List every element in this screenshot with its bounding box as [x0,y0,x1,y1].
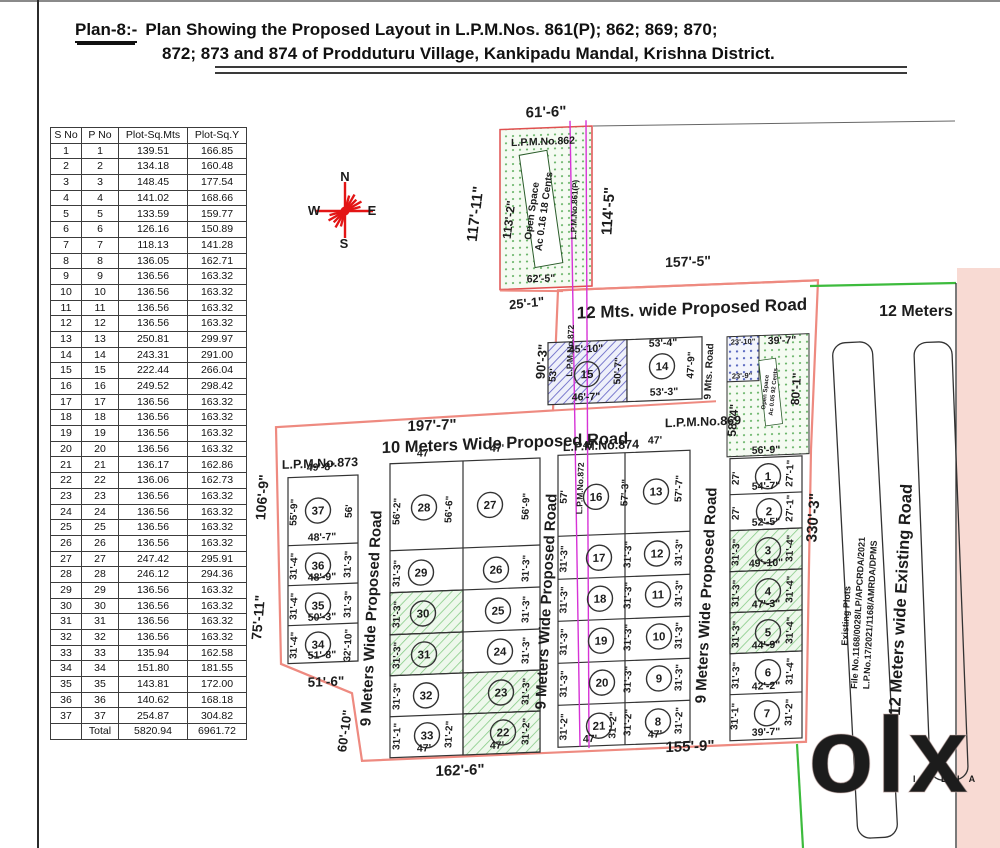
plot-number: 9 [656,673,662,685]
compass-rose: N E S W [308,169,377,251]
compass-south-label: S [340,236,349,251]
dim-label: 31'-3" [730,661,742,689]
road-and-file-labels: 12 Meters330'-3"Existing PlotsFile No.11… [803,303,953,716]
dim-label: 155'-9" [665,737,714,756]
dim-label: 51'-6" [308,674,345,690]
plot-number: 21 [593,720,606,733]
dim-label: L.P.M.No.869 [665,413,741,430]
olx-watermark-india: I N D I A [913,774,979,784]
dim-label: 12 Meters [879,303,953,320]
dim-label: 31'-3" [558,628,570,656]
dim-label: 48'-7" [308,531,337,544]
dim-label: 57'-3" [619,479,631,507]
dim-label: 46'-7" [572,391,601,404]
plot-number: 15 [581,369,594,382]
dim-label: 31'-3" [342,590,354,618]
dim-label: 31'-3" [391,641,403,669]
dim-label: 56'-9" [520,492,532,520]
plot-number: 10 [653,631,666,643]
dim-label: 31'-3" [622,666,634,694]
dim-label: 47' [417,742,431,755]
dim-label: 47' [648,434,662,447]
plot-number: 33 [421,730,434,742]
dim-label: 162'-6" [435,761,484,780]
dim-label: 54'-7" [752,480,781,493]
dim-label: 55'-9" [288,498,300,526]
dim-label: 44'-9" [752,639,781,652]
dim-label: 31'-3" [520,595,532,623]
plot-number: 25 [492,605,505,618]
dim-label: L.P.M.No.872 [564,325,576,377]
green-road-line-top [810,283,956,286]
dim-label: 106'-9" [252,474,272,521]
dim-label: 114'-5" [598,187,618,236]
dim-label: 50'-3" [308,611,337,624]
dim-label: 31'-4" [288,631,300,659]
dim-label: 31'-1" [729,702,741,730]
dim-label: 60'-10" [334,709,355,753]
plot-number: 24 [494,646,507,659]
dim-label: 31'-3" [622,541,634,569]
dim-label: 23'-9" [732,371,753,381]
plot-number: 26 [490,564,503,576]
dim-label: 50'-7" [612,357,624,385]
dim-label: 53' [547,368,559,382]
plan-drawing: 1514373635342829303132332726252423221617… [0,0,1000,848]
plot-number: 29 [415,567,428,579]
dim-label: 31'-4" [288,552,300,580]
dim-label: 31'-3" [520,636,532,664]
dim-label: 31'-2" [443,720,455,748]
dim-label: 47' [583,439,597,452]
dim-label: 39'-7" [768,334,797,347]
dim-label: 31'-2" [783,698,795,726]
dim-label: 31'-3" [622,624,634,652]
dim-label: 31'-4" [784,657,796,685]
dim-label: 27'-1" [784,494,796,522]
plot-number: 22 [497,727,510,739]
dim-label: 31'-3" [622,582,634,610]
dim-label: 47' [583,733,597,746]
dim-label: L.P.M.No.874 [563,437,639,454]
dim-label: L.P.M.No.862 [511,135,575,149]
dim-label: 56'-6" [443,495,455,523]
plot-number: 37 [312,505,325,517]
plot-number: 19 [595,635,608,647]
dim-label: 31'-2" [558,713,570,741]
dim-label: 47'-9" [685,351,697,379]
plot-number: 20 [596,677,609,689]
dim-label: 56' [344,504,356,518]
plot-number: 4 [765,586,772,598]
scanned-layout-plan: Plan-8:-Plan Showing the Proposed Layout… [0,0,1000,848]
dim-label: 47'-3" [752,598,781,611]
dim-label: 62'-5" [527,272,556,285]
dim-label: 48'-9" [308,571,337,584]
dim-label: 56'-2" [391,497,403,525]
dim-label: 47' [490,442,504,455]
dim-label: 31'-3" [391,559,403,587]
dim-label: 56'-9" [752,444,781,457]
dim-label: 61'-6" [526,103,567,122]
north-boundary-line [593,121,955,126]
plot-number: 18 [594,593,607,606]
dim-label: 31'-3" [558,545,570,573]
dim-label: 31'-2" [622,709,634,737]
dim-label: 31'-3" [520,677,532,705]
dim-label: 31'-4" [784,575,796,603]
dim-label: 9 Meters Wide Proposed Road [357,510,385,726]
dim-label: 197'-7" [407,416,456,435]
plot-number: 32 [420,690,433,702]
plot-number: 3 [765,545,771,557]
dim-label: 39'-7" [752,726,781,739]
dim-label: 9 Mts. Road [703,343,717,399]
dim-label: 47' [417,447,431,460]
dim-label: 53'-4" [649,337,678,350]
dim-label: 31'-2" [673,707,685,735]
dim-label: 31'-1" [391,722,403,750]
dim-label: 47' [490,739,504,752]
dim-label: 25'-1" [509,294,545,313]
plot-number: 16 [590,492,603,504]
dim-label: 31'-3" [342,550,354,578]
dim-label: 47' [648,728,662,741]
dim-label: 31'-3" [673,622,685,650]
dim-label: 31'-4" [288,592,300,620]
dim-label: 51'-8" [308,649,337,662]
dim-label: 53'-3" [650,386,679,399]
dim-label: 23'-10" [731,337,756,347]
dim-label: 330'-3" [803,493,823,543]
dim-label: 27' [731,506,743,520]
dim-label: 27'-1" [784,459,796,487]
dim-label: 31'-3" [520,554,532,582]
plot-number: 8 [655,716,662,728]
plot-number: 5 [765,627,772,639]
dim-label: 49'-10" [749,557,783,570]
dim-label: 31'-3" [730,538,742,566]
dim-label: 31'-3" [673,539,685,567]
dim-label: 31'-3" [673,664,685,692]
dim-label: 57' [559,490,571,504]
compass-east-label: E [368,203,377,218]
dim-label: 12 Mts. wide Proposed Road [577,295,807,323]
compass-north-label: N [340,169,349,184]
olx-watermark: olx [808,694,970,815]
plot-number: 11 [652,589,665,601]
plot-number: 28 [418,502,431,515]
dim-label: 31'-3" [391,600,403,628]
dim-label: Existing Plots [839,586,852,646]
dim-label: 49'-8" [307,461,336,474]
dim-label: 75'-11" [248,595,268,641]
dim-label: 52'-5" [752,516,781,529]
dim-label: 31'-3" [558,586,570,614]
dim-label: 31'-3" [558,670,570,698]
dim-label: 80'-1" [788,372,804,405]
plot-number: 23 [495,687,508,699]
dim-label: 117'-11" [464,185,488,242]
dim-label: 57'-7" [673,475,685,503]
dim-label: 31'-2" [520,717,532,745]
dim-label: 157'-5" [665,252,711,270]
dim-label: 12 Meters wide Existing Road [886,483,916,716]
compass-west-label: W [308,203,321,218]
plot-number: 14 [656,361,669,374]
dim-label: 31'-3" [730,620,742,648]
dim-label: 31'-3" [730,579,742,607]
plot-number: 17 [593,552,606,564]
dim-label: 31'-2" [607,711,619,739]
green-road-line-bottom [797,744,803,848]
dim-label: 9 Meters Wide Proposed Road [692,487,720,703]
plot-number: 12 [651,548,664,560]
dim-label: 31'-3" [673,580,685,608]
dim-label: 27' [731,471,743,485]
dim-label: 31'-4" [784,534,796,562]
dim-label: 31'-3" [391,682,403,710]
dim-label: 42'-2" [752,680,781,693]
plot-number: 27 [484,500,497,512]
dim-label: 31'-4" [784,616,796,644]
plot-number: 30 [417,608,430,620]
plot-number: 6 [765,667,771,679]
dim-label: 32'-10" [342,629,355,662]
plot-number: 31 [418,649,431,662]
plot-number: 7 [764,708,770,720]
plot-number: 13 [650,486,663,498]
dim-label: L.P.M.No.872 [574,462,586,514]
